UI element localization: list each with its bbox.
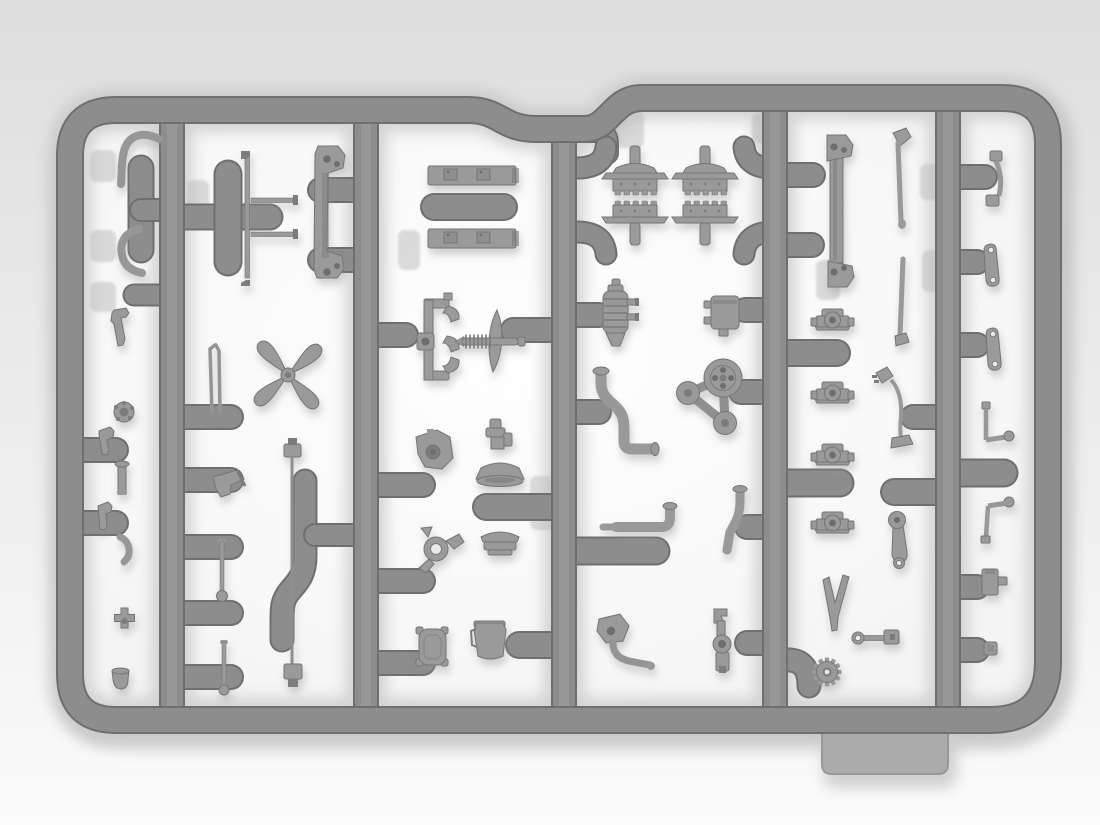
sprue-photo [0, 0, 1100, 825]
part-cup-part [112, 668, 129, 689]
part-track-strip-2 [428, 229, 519, 248]
ghost-nub [398, 230, 420, 270]
part-capsule-box [416, 627, 448, 666]
part-small-cube [984, 642, 997, 655]
ghost-nub [90, 230, 116, 262]
part-track-strip-1 [428, 166, 519, 185]
sprue-render [0, 0, 1100, 825]
ghost-nub [90, 282, 116, 312]
ghost-nub [90, 150, 116, 182]
